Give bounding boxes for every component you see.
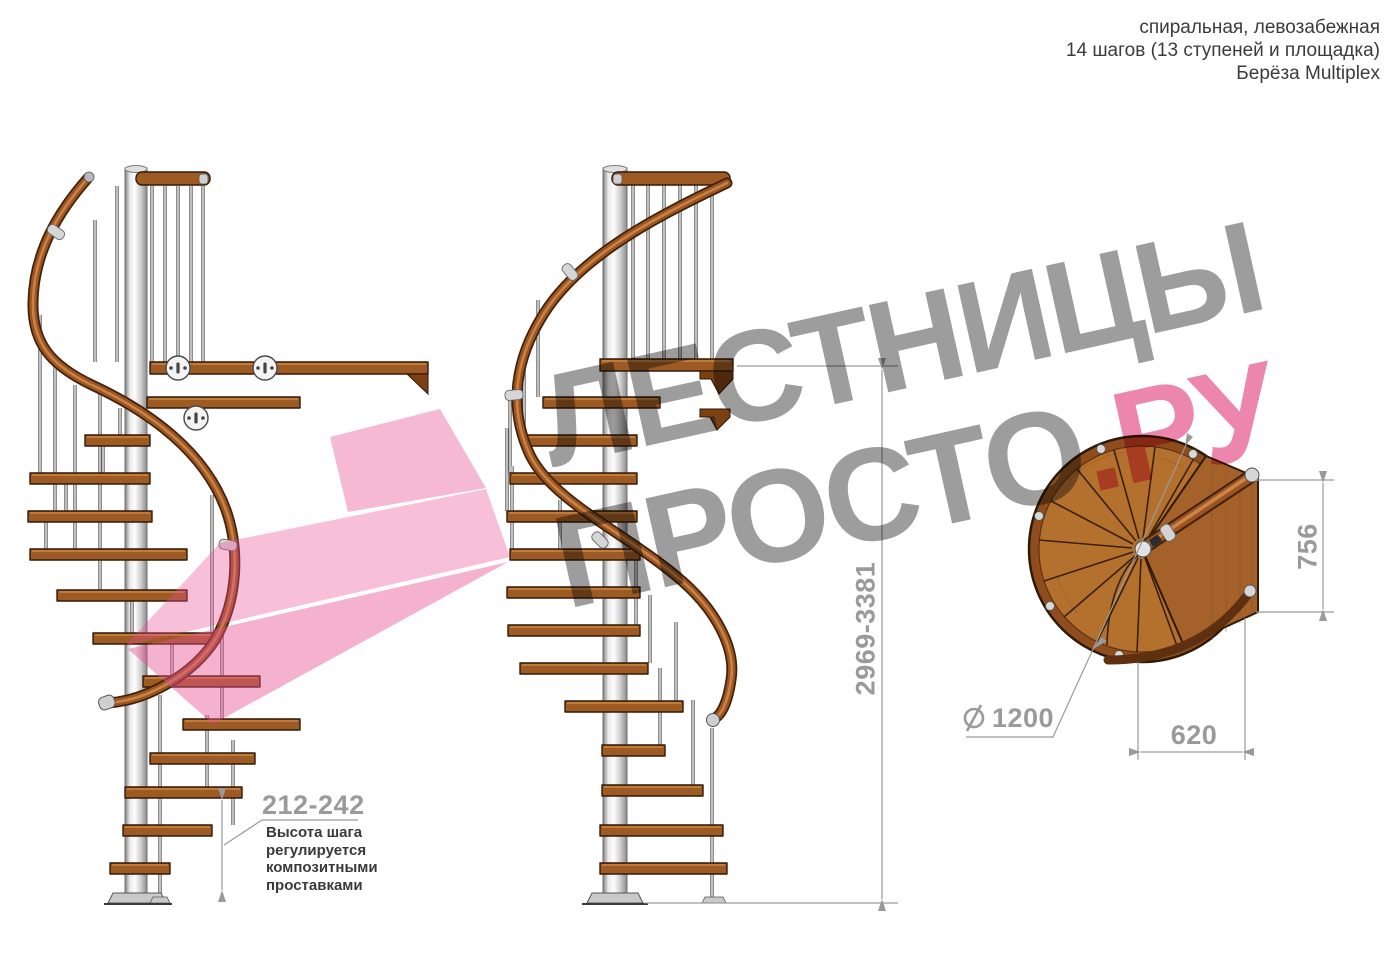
handrail-arc-cap	[1244, 585, 1256, 597]
product-type: спиральная, левозабежная	[1066, 16, 1380, 39]
step-height-note: Высота шага регулируется композитными пр…	[266, 824, 378, 894]
handrail-end-cap	[97, 694, 116, 712]
pole-base	[104, 893, 172, 904]
note-line-2: регулируется	[266, 842, 378, 860]
pole-base	[582, 893, 726, 904]
diameter-dimension-label: 1200	[961, 702, 1054, 734]
handrail-sleeve	[505, 389, 524, 401]
rail-end-cap	[199, 174, 208, 184]
steps-info: 14 шагов (13 ступеней и площадка)	[1066, 39, 1380, 62]
landing-side-dimension-label: 756	[1293, 507, 1324, 587]
landing-width-dimension-label: 620	[1154, 720, 1234, 751]
center-hub	[1135, 541, 1151, 557]
handrail-end-cap	[707, 714, 720, 727]
note-line-1: Высота шага	[266, 824, 378, 842]
diameter-value: 1200	[992, 703, 1054, 734]
step-height-dimension-label: 212-242	[262, 790, 365, 821]
watermark-logo-arrow	[125, 409, 510, 724]
diameter-symbol-icon	[961, 702, 987, 734]
drawing-info: спиральная, левозабежная 14 шагов (13 ст…	[1066, 16, 1380, 85]
top-railing	[136, 172, 210, 185]
handrail-top-cap	[84, 172, 94, 182]
technical-drawing-page: спиральная, левозабежная 14 шагов (13 ст…	[0, 0, 1400, 956]
note-line-3: композитными	[266, 859, 378, 877]
rail-end-cap	[613, 174, 622, 184]
top-railing	[612, 172, 730, 185]
landing-bracket	[407, 374, 428, 394]
note-line-4: проставками	[266, 877, 378, 895]
material: Берёза Multiplex	[1066, 62, 1380, 85]
